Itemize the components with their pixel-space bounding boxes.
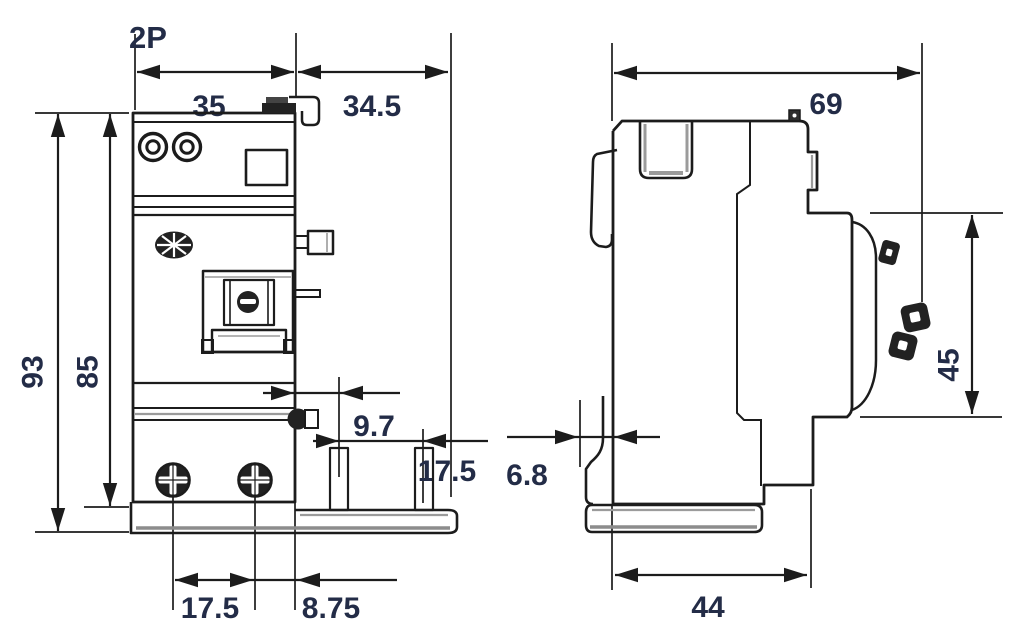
- din-clip-lower: [586, 396, 603, 504]
- brand-logo-oval: [155, 232, 193, 259]
- front-device-body: [131, 97, 457, 533]
- dim-label-front-terminal-spacing: 17.5: [181, 592, 239, 625]
- dim-side-terminal-zone: 45: [933, 215, 980, 414]
- dim-front-body-height: 85: [72, 114, 118, 506]
- indicator-window: [246, 150, 287, 185]
- front-view: 35 34.5 2P 93 85 9: [17, 20, 489, 625]
- dim-side-clip-depth: 6.8: [506, 430, 660, 492]
- handle-bar: [212, 330, 286, 352]
- coupling-hook: [262, 97, 319, 125]
- cage-terminal-lower: [887, 330, 919, 362]
- dim-label-side-total-depth: 69: [809, 88, 842, 121]
- dim-front-side-extension: 34.5: [298, 65, 448, 123]
- busbar-pin-thin: [295, 290, 320, 297]
- dim-front-total-height: 93: [17, 114, 66, 531]
- dim-label-front-pin-offset: 9.7: [353, 410, 395, 443]
- side-view: 69 45 6.8 44: [506, 43, 1003, 624]
- dim-side-body-depth: 44: [615, 568, 807, 624]
- busbar-pin-upper: [295, 231, 333, 254]
- mechanism-block: [202, 271, 295, 353]
- technical-drawing: 35 34.5 2P 93 85 9: [0, 0, 1031, 644]
- dim-label-side-body-depth: 44: [691, 591, 725, 624]
- dim-side-total-depth: 69: [614, 66, 920, 121]
- terminal-screw-right: [239, 464, 272, 497]
- side-extension-lines: [580, 43, 1003, 590]
- cage-terminal-upper: [900, 301, 932, 333]
- dim-front-terminal-spacing: 17.5: [175, 573, 397, 625]
- dim-label-front-side-extension: 34.5: [343, 90, 401, 123]
- technical-drawing-page: 35 34.5 2P 93 85 9: [0, 0, 1031, 644]
- side-device-body: [586, 110, 932, 532]
- solenoid-pin: [288, 409, 319, 430]
- top-recess-notch: [640, 122, 692, 178]
- dim-label-side-terminal-zone: 45: [933, 348, 966, 381]
- dim-label-front-width: 35: [192, 90, 225, 123]
- dim-label-front-pin-spacing: 17.5: [418, 455, 476, 488]
- pole-count-label: 2P: [129, 20, 167, 55]
- dim-label-front-terminal-edge-offset: 8.75: [302, 592, 360, 625]
- dim-label-side-clip-depth: 6.8: [506, 459, 548, 492]
- side-screw: [877, 239, 900, 266]
- dim-label-front-body-height: 85: [72, 355, 105, 388]
- dim-label-front-total-height: 93: [17, 355, 50, 388]
- terminal-hole-left: [140, 134, 167, 161]
- terminal-screw-left: [157, 464, 190, 497]
- terminal-hole-right: [174, 134, 201, 161]
